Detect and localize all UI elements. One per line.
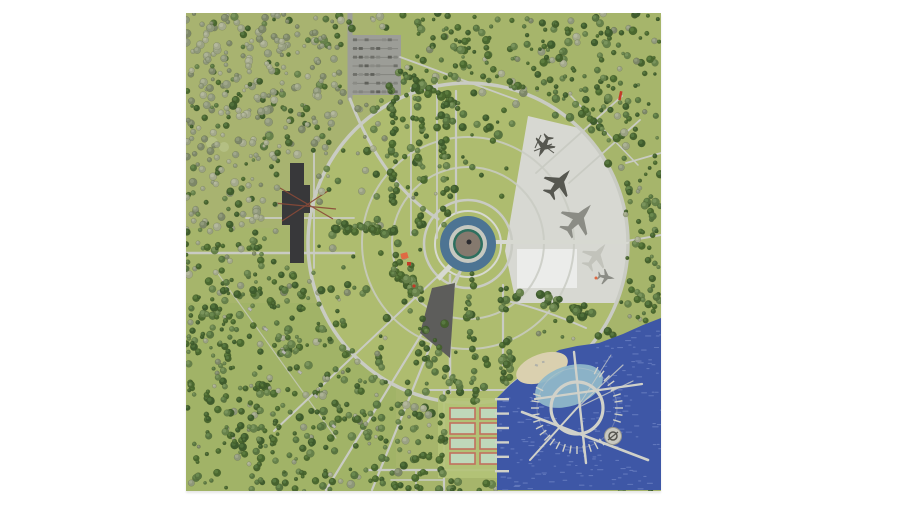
tree-highlight: [263, 145, 265, 147]
tree-highlight: [415, 155, 419, 159]
tree-highlight: [377, 13, 381, 17]
wave: [507, 478, 511, 479]
tree-highlight: [445, 13, 448, 16]
tree-highlight: [222, 298, 226, 302]
tree-highlight: [554, 90, 557, 93]
tree-highlight: [312, 116, 314, 118]
tree-highlight: [408, 309, 411, 312]
tree-highlight: [196, 473, 200, 477]
tree-highlight: [547, 48, 549, 50]
wave: [611, 348, 614, 349]
tree-highlight: [233, 439, 235, 441]
tree-highlight: [610, 332, 613, 335]
tree-highlight: [248, 83, 250, 85]
tree-highlight: [622, 52, 624, 54]
wave: [652, 423, 655, 424]
tree-highlight: [458, 47, 462, 51]
tree-highlight: [315, 410, 318, 413]
tree-highlight: [475, 398, 478, 401]
wave: [592, 458, 596, 459]
parked-car: [370, 47, 374, 50]
tree-highlight: [225, 106, 228, 109]
tree-highlight: [504, 381, 507, 384]
tree-highlight: [654, 161, 656, 163]
tree-highlight: [245, 271, 248, 274]
tree-highlight: [627, 190, 630, 193]
tree-highlight: [470, 165, 473, 168]
wave: [513, 411, 519, 412]
tree-highlight: [196, 321, 198, 323]
tree-highlight: [222, 323, 224, 325]
tree-highlight: [227, 160, 229, 162]
tree-highlight: [504, 307, 507, 310]
tree-highlight: [242, 434, 246, 438]
tree-highlight: [394, 160, 396, 162]
tree-highlight: [580, 89, 582, 91]
tree-highlight: [374, 401, 378, 405]
wave: [657, 424, 661, 425]
tree-highlight: [216, 171, 219, 174]
tree-highlight: [635, 290, 638, 293]
tree-highlight: [241, 54, 243, 56]
tree-highlight: [271, 437, 275, 441]
tree-highlight: [335, 45, 338, 48]
parked-car: [365, 38, 369, 41]
tree-highlight: [317, 199, 320, 202]
tree-highlight: [527, 62, 529, 64]
tree-highlight: [408, 451, 410, 453]
tree-highlight: [393, 263, 395, 265]
tree-highlight: [245, 43, 247, 45]
tree-highlight: [254, 273, 256, 275]
tree-highlight: [229, 228, 231, 230]
tree-highlight: [419, 248, 421, 250]
tree-highlight: [368, 411, 371, 414]
tree-highlight: [290, 316, 293, 319]
tree-highlight: [634, 84, 636, 86]
tree-highlight: [448, 194, 451, 197]
tree-highlight: [573, 102, 576, 105]
tree-highlight: [601, 75, 604, 78]
tree-highlight: [205, 452, 207, 454]
tree-highlight: [381, 481, 384, 484]
tree-highlight: [342, 377, 346, 381]
tree-highlight: [408, 145, 412, 149]
tree-highlight: [201, 187, 203, 189]
parked-car: [353, 56, 357, 59]
tree-highlight: [605, 160, 609, 164]
tree-highlight: [221, 133, 223, 135]
tree-highlight: [515, 57, 518, 60]
tree-highlight: [604, 41, 608, 45]
tree-highlight: [313, 390, 316, 393]
tree-highlight: [257, 79, 260, 82]
tree-highlight: [293, 282, 296, 285]
parked-car: [370, 64, 374, 67]
tree-highlight: [234, 77, 237, 80]
tree-highlight: [197, 445, 199, 447]
tree-highlight: [273, 18, 275, 20]
tree-highlight: [349, 468, 351, 470]
tree-highlight: [262, 15, 266, 19]
tree-highlight: [423, 389, 427, 393]
tree-highlight: [329, 232, 333, 236]
tree-highlight: [430, 436, 432, 438]
tree-highlight: [297, 469, 300, 472]
tree-highlight: [255, 281, 257, 283]
tree-highlight: [282, 287, 286, 291]
tree-highlight: [502, 108, 505, 111]
tree-highlight: [473, 50, 475, 52]
parked-car: [353, 82, 357, 85]
tree-highlight: [303, 45, 305, 47]
tree-highlight: [419, 327, 421, 329]
tree-highlight: [401, 117, 404, 120]
tree-highlight: [447, 380, 451, 384]
tree-highlight: [245, 85, 247, 87]
finger-pier: [495, 412, 509, 414]
wave: [641, 392, 647, 393]
wave: [630, 400, 633, 401]
wave: [555, 453, 560, 454]
tree-highlight: [254, 465, 257, 468]
tree-highlight: [371, 126, 375, 130]
tree-highlight: [201, 92, 205, 96]
tree-highlight: [280, 39, 283, 42]
tree-highlight: [317, 174, 320, 177]
tree-highlight: [284, 345, 286, 347]
tree-highlight: [512, 85, 515, 88]
tree-highlight: [439, 435, 442, 438]
tree-highlight: [224, 280, 227, 283]
tree-highlight: [629, 287, 632, 290]
tree-highlight: [332, 82, 335, 85]
wave: [535, 473, 541, 474]
tree-highlight: [368, 442, 370, 444]
tree-highlight: [432, 357, 435, 360]
wave: [653, 444, 657, 445]
finger-pier: [495, 470, 509, 472]
wave: [619, 402, 623, 403]
tree-highlight: [259, 445, 261, 447]
clearing-circle: [219, 142, 229, 152]
tree-highlight: [279, 272, 282, 275]
tree-highlight: [218, 307, 220, 309]
tree-highlight: [254, 449, 258, 453]
tree-highlight: [419, 297, 422, 300]
tree-highlight: [364, 148, 368, 152]
tree-highlight: [350, 349, 353, 352]
wave: [502, 489, 508, 490]
tree-highlight: [219, 341, 221, 343]
wave: [637, 362, 643, 363]
tree-highlight: [364, 381, 366, 383]
tree-highlight: [474, 122, 478, 126]
tree-highlight: [216, 359, 219, 362]
tree-highlight: [223, 315, 225, 317]
tree-highlight: [319, 79, 321, 81]
tree-highlight: [200, 222, 204, 226]
tree-highlight: [619, 101, 621, 103]
tree-highlight: [650, 276, 653, 279]
tree-highlight: [210, 173, 214, 177]
tree-highlight: [441, 206, 444, 209]
tree-highlight: [242, 293, 244, 295]
tree-highlight: [653, 304, 656, 307]
wave: [590, 469, 593, 470]
tree-highlight: [284, 126, 286, 128]
tree-highlight: [267, 94, 269, 96]
tree-highlight: [342, 149, 344, 151]
tree-highlight: [266, 133, 270, 137]
tree-highlight: [246, 26, 249, 29]
tree-highlight: [353, 224, 356, 227]
wave: [647, 483, 653, 484]
tree-highlight: [390, 194, 394, 198]
tree-highlight: [589, 310, 593, 314]
tree-highlight: [654, 113, 657, 116]
tree-highlight: [554, 85, 556, 87]
tree-highlight: [219, 167, 222, 170]
tree-highlight: [511, 44, 515, 48]
tree-highlight: [411, 426, 414, 429]
tree-highlight: [390, 407, 392, 409]
tree-highlight: [354, 414, 356, 416]
tree-highlight: [305, 434, 308, 437]
tree-highlight: [424, 329, 427, 332]
tree-highlight: [427, 423, 429, 425]
tree-highlight: [258, 408, 261, 411]
wave: [637, 376, 643, 377]
tree-highlight: [277, 305, 279, 307]
tree-highlight: [403, 438, 407, 442]
tree-highlight: [399, 69, 402, 72]
tree-highlight: [432, 88, 435, 91]
tree-highlight: [372, 465, 376, 469]
tree-highlight: [573, 308, 577, 312]
tree-highlight: [354, 444, 357, 447]
tree-highlight: [342, 266, 344, 268]
tree-highlight: [195, 65, 197, 67]
tree-highlight: [371, 146, 374, 149]
tree-highlight: [280, 81, 282, 83]
tree-highlight: [273, 422, 275, 424]
wave: [648, 359, 652, 360]
tree-highlight: [318, 424, 322, 428]
wave: [648, 363, 652, 364]
dark-building-wing: [304, 185, 310, 213]
tree-highlight: [612, 51, 615, 54]
tree-highlight: [329, 473, 331, 475]
tree-highlight: [345, 402, 348, 405]
tree-highlight: [582, 106, 584, 108]
tree-highlight: [379, 251, 382, 254]
tree-highlight: [451, 44, 454, 47]
tree-highlight: [209, 94, 213, 98]
tree-highlight: [205, 245, 208, 248]
parked-car: [388, 56, 392, 59]
tree-highlight: [343, 352, 346, 355]
tree-highlight: [196, 163, 198, 165]
tree-highlight: [239, 94, 241, 96]
tree-highlight: [225, 426, 227, 428]
tree-highlight: [292, 460, 294, 462]
tree-highlight: [600, 109, 602, 111]
wave: [501, 447, 505, 448]
tree-highlight: [197, 126, 199, 128]
tree-highlight: [291, 274, 294, 277]
tree-highlight: [416, 55, 418, 57]
tree-highlight: [440, 453, 443, 456]
tree-highlight: [499, 71, 503, 75]
tree-highlight: [240, 222, 243, 225]
tree-highlight: [504, 361, 508, 365]
tree-highlight: [414, 117, 417, 120]
tree-highlight: [567, 316, 571, 320]
tree-highlight: [553, 112, 556, 115]
tree-highlight: [647, 56, 651, 60]
tree-highlight: [204, 482, 206, 484]
tree-highlight: [235, 212, 238, 215]
tree-highlight: [210, 479, 212, 481]
parking-lot-group: [349, 35, 401, 95]
tree-highlight: [553, 95, 557, 99]
wave: [648, 395, 653, 396]
tree-highlight: [288, 341, 292, 345]
tree-highlight: [247, 70, 249, 72]
tree-highlight: [301, 104, 303, 106]
tree-highlight: [261, 384, 263, 386]
tree-highlight: [277, 334, 280, 337]
parked-car: [376, 90, 380, 93]
tree-highlight: [418, 213, 421, 216]
tree-highlight: [204, 200, 206, 202]
tree-highlight: [272, 302, 274, 304]
tree-highlight: [190, 137, 192, 139]
wave: [520, 459, 523, 460]
tree-highlight: [231, 320, 234, 323]
tree-highlight: [222, 15, 226, 19]
tree-highlight: [505, 167, 507, 169]
tree-highlight: [356, 152, 358, 154]
wave: [622, 370, 626, 371]
tree-highlight: [331, 20, 333, 22]
tree-highlight: [363, 168, 366, 171]
tree-highlight: [232, 366, 234, 368]
tree-highlight: [317, 322, 319, 324]
tree-highlight: [287, 150, 289, 152]
tree-highlight: [386, 83, 390, 87]
tree-highlight: [548, 41, 552, 45]
tree-highlight: [379, 455, 383, 459]
tree-highlight: [275, 38, 278, 41]
tree-highlight: [283, 480, 286, 483]
tree-highlight: [320, 393, 324, 397]
tree-highlight: [258, 257, 262, 261]
tree-highlight: [328, 286, 332, 290]
tree-highlight: [507, 350, 510, 353]
tree-highlight: [211, 304, 215, 308]
tree-highlight: [321, 74, 324, 77]
tree-highlight: [398, 483, 401, 486]
tree-highlight: [646, 258, 649, 261]
tree-highlight: [471, 134, 473, 136]
parked-car: [353, 47, 357, 50]
wave: [636, 331, 641, 332]
tree-highlight: [273, 458, 276, 461]
tree-highlight: [438, 165, 440, 167]
tree-highlight: [495, 131, 499, 135]
tree-highlight: [406, 486, 409, 489]
tree-highlight: [364, 468, 366, 470]
tree-highlight: [419, 117, 422, 120]
tree-highlight: [271, 391, 275, 395]
page-background: [0, 0, 900, 506]
tree-highlight: [472, 337, 475, 340]
tree-highlight: [447, 486, 450, 489]
tree-highlight: [188, 389, 190, 391]
tree-highlight: [198, 144, 202, 148]
tree-highlight: [280, 89, 282, 91]
tree-highlight: [327, 140, 330, 143]
wave: [606, 411, 611, 412]
tree-highlight: [295, 72, 298, 75]
tree-highlight: [205, 312, 208, 315]
tree-highlight: [318, 287, 322, 291]
tree-highlight: [196, 212, 198, 214]
tree-highlight: [396, 439, 398, 441]
tree-highlight: [208, 148, 212, 152]
tree-highlight: [379, 425, 382, 428]
parked-car: [365, 64, 369, 67]
tree-highlight: [397, 260, 400, 263]
tree-highlight: [420, 316, 423, 319]
tree-highlight: [327, 188, 329, 190]
tree-highlight: [206, 433, 209, 436]
tree-highlight: [504, 339, 508, 343]
tree-highlight: [636, 237, 639, 240]
tree-highlight: [250, 474, 253, 477]
tree-highlight: [548, 77, 551, 80]
tree-highlight: [239, 186, 242, 189]
tree-highlight: [483, 356, 486, 359]
tree-highlight: [431, 36, 434, 39]
tree-highlight: [655, 230, 657, 232]
tree-highlight: [477, 488, 480, 491]
tree-highlight: [624, 212, 627, 215]
tree-highlight: [206, 57, 209, 60]
tree-highlight: [396, 402, 399, 405]
wave: [569, 461, 574, 462]
wave: [593, 456, 597, 457]
tree-highlight: [525, 42, 528, 45]
tree-highlight: [227, 314, 230, 317]
tree-highlight: [355, 359, 358, 362]
tree-highlight: [295, 32, 298, 35]
tree-highlight: [273, 202, 275, 204]
tree-highlight: [295, 458, 297, 460]
tree-highlight: [231, 433, 233, 435]
tree-highlight: [311, 66, 313, 68]
tree-highlight: [441, 177, 444, 180]
parked-car: [365, 73, 369, 76]
tree-highlight: [239, 451, 241, 453]
wave: [652, 426, 658, 427]
tree-highlight: [203, 305, 206, 308]
tree-highlight: [204, 32, 207, 35]
wave: [514, 486, 520, 487]
tree-highlight: [643, 110, 645, 112]
